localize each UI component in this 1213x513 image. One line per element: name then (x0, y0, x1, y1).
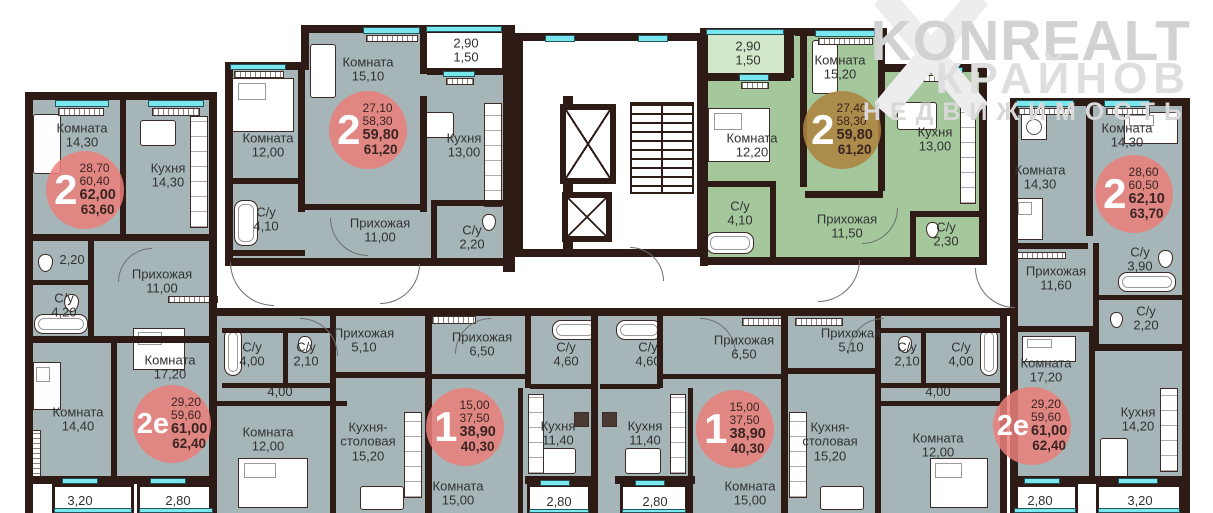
radiator-icon (1018, 108, 1072, 115)
corridor-area (217, 266, 1003, 310)
window-icon (148, 100, 204, 107)
room-name: Кухня-столовая (327, 421, 409, 450)
room-name: Комната (53, 406, 104, 420)
window-icon (1098, 508, 1180, 513)
room-label: Комната14,40 (53, 406, 104, 435)
wall (431, 200, 510, 206)
apartment-badge[interactable]: 2 28,6060,50 62,1063,70 (1095, 155, 1173, 233)
room-label: Прихожая6,50 (452, 331, 512, 360)
apartment-badge[interactable]: 1 15,0037,50 38,9040,30 (426, 388, 504, 466)
wall (215, 401, 347, 406)
window-icon (150, 478, 186, 484)
room-label: Кухня13,00 (918, 126, 953, 155)
room-label: Комната14,30 (1102, 122, 1153, 151)
room-area: 15,10 (343, 70, 394, 84)
apartment-areas: 27,1058,30 59,8061,20 (363, 102, 399, 157)
room-label: Комната14,30 (57, 122, 108, 151)
bathtub-icon (616, 320, 662, 340)
room-area: 13,00 (918, 140, 953, 154)
apartment-rooms-count: 2е (137, 410, 169, 439)
window-icon (1016, 100, 1074, 107)
wall (700, 28, 708, 266)
room-area: 17,20 (1021, 371, 1072, 385)
wall (225, 62, 233, 266)
room-area: 11,00 (132, 282, 192, 296)
window-icon (55, 100, 109, 107)
room-area: 2,80 (642, 495, 667, 509)
window-icon (638, 35, 668, 42)
wall (518, 388, 523, 513)
room-name: Кухня-столовая (789, 421, 871, 450)
radiator-icon (32, 430, 41, 480)
room-area: 2,80 (546, 495, 571, 509)
room-name: Прихожая (350, 217, 410, 231)
room-area: 14,30 (1102, 136, 1153, 150)
apartment-rooms-count: 1 (434, 406, 457, 448)
wall (209, 92, 217, 513)
room-name: С/у (459, 224, 484, 238)
window-icon (905, 67, 963, 74)
room-name: Комната (145, 354, 196, 368)
room-name: Кухня (918, 126, 953, 140)
room-name: Прихожая (817, 213, 877, 227)
wall (879, 328, 1003, 333)
room-label: С/у2,20 (459, 224, 484, 253)
radiator-icon (1016, 252, 1066, 259)
room-area: 2,20 (59, 253, 84, 267)
wall (1089, 332, 1095, 478)
wall (600, 384, 660, 389)
wall (1182, 98, 1190, 513)
room-label: 3,20 (67, 494, 92, 508)
room-label: Комната12,00 (913, 432, 964, 461)
bed-icon (238, 458, 308, 508)
room-area: 15,20 (327, 449, 409, 463)
apartment-badge[interactable]: 1 15,0037,50 38,9040,30 (696, 390, 774, 468)
window-icon (635, 480, 665, 486)
wall (111, 343, 117, 480)
apartment-badge-highlighted[interactable]: 2 27,4058,30 59,8061,20 (803, 91, 881, 169)
room-label: Прихожая5,10 (334, 327, 394, 356)
room-label: Кухня11,40 (541, 420, 576, 449)
room-area: 2,10 (894, 355, 919, 369)
watermark-brand: KONREALT (863, 14, 1191, 68)
room-area: 14,30 (151, 176, 186, 190)
window-icon (62, 478, 98, 484)
room-label: С/у2,30 (933, 221, 958, 250)
bed-icon (232, 78, 294, 132)
window-icon (363, 27, 420, 34)
wall (1093, 344, 1183, 351)
room-label: С/у2,10 (894, 341, 919, 370)
kitchen-counter-icon (484, 103, 502, 207)
room-name: С/у (727, 200, 752, 214)
wall (120, 100, 126, 240)
kitchen-counter-icon (670, 394, 686, 474)
wall (1014, 243, 1088, 249)
wall (800, 35, 807, 187)
room-label: Комната15,10 (343, 56, 394, 85)
apartment-rooms-count: 2 (811, 109, 834, 151)
room-area: 6,50 (452, 345, 512, 359)
room-area: 15,00 (433, 494, 484, 508)
wall (805, 191, 883, 198)
room-name: Прихожая (132, 268, 192, 282)
room-label: 2,901,50 (453, 37, 478, 66)
room-label: Кухня14,30 (151, 162, 186, 191)
room-label: Кухня-столовая15,20 (327, 421, 409, 464)
apartment-badge[interactable]: 2е 29,2059,60 61,0062,40 (993, 387, 1071, 465)
room-label: Комната15,00 (725, 480, 776, 509)
room-name: Кухня (1121, 406, 1156, 420)
sofa-icon (310, 44, 336, 98)
wall (298, 68, 305, 212)
wall (688, 388, 693, 513)
wall (530, 384, 591, 389)
radiator-icon (741, 82, 769, 89)
bathtub-icon (1118, 272, 1176, 292)
room-label: Прихожая11,60 (1026, 265, 1086, 294)
room-area: 15,20 (789, 449, 871, 463)
radiator-icon (742, 318, 786, 326)
room-name: С/у (1133, 305, 1158, 319)
room-area: 3,20 (1127, 494, 1152, 508)
radiator-icon (432, 316, 476, 324)
room-label: Прихожая5,10 (821, 327, 881, 356)
room-label: С/у4,10 (727, 200, 752, 229)
wall (31, 280, 91, 285)
wall (1098, 295, 1184, 300)
room-label: Комната12,20 (727, 132, 778, 161)
wall (31, 234, 213, 241)
room-area: 14,30 (1015, 178, 1066, 192)
room-name: Комната (57, 122, 108, 136)
window-icon (622, 509, 686, 513)
room-label: Прихожая6,50 (714, 334, 774, 363)
room-label: С/у4,20 (51, 292, 76, 321)
room-area: 14,40 (53, 420, 104, 434)
wall (700, 181, 776, 187)
room-name: С/у (933, 221, 958, 235)
room-name: С/у (635, 341, 660, 355)
wall (979, 68, 987, 265)
room-name: Прихожая (1026, 265, 1086, 279)
room-name: Комната (1015, 164, 1066, 178)
floor-plan: 2 28,7060,40 62,0063,60 2 27,1058,30 59,… (0, 0, 1213, 513)
wall (88, 241, 94, 339)
wall (25, 92, 217, 100)
apartment-areas: 29,2059,60 61,0062,40 (1031, 398, 1067, 453)
room-label: 2,80 (546, 495, 571, 509)
room-area: 14,30 (57, 136, 108, 150)
room-area: 2,10 (293, 355, 318, 369)
room-name: Комната (725, 480, 776, 494)
dining-table-icon (140, 120, 176, 146)
room-name: Комната (343, 56, 394, 70)
wall (787, 368, 877, 374)
room-label: С/у4,60 (635, 341, 660, 370)
elevator-shaft-icon (560, 104, 616, 184)
room-area: 12,00 (243, 146, 294, 160)
room-area: 12,00 (243, 440, 294, 454)
wall (910, 211, 916, 259)
room-label: С/у2,20 (1133, 305, 1158, 334)
bathtub-icon (706, 232, 754, 254)
apartment-areas: 28,6060,50 62,1063,70 (1129, 166, 1165, 221)
apartment-areas: 27,4058,30 59,8061,20 (837, 102, 873, 157)
dining-table-icon (625, 448, 661, 474)
room-label: 4,00 (267, 385, 292, 399)
room-name: С/у (239, 341, 264, 355)
room-label: Комната15,00 (433, 480, 484, 509)
room-label: Кухня-столовая15,20 (789, 421, 871, 464)
wall (515, 249, 705, 257)
wall (1086, 106, 1093, 236)
washing-machine-icon (1021, 114, 1047, 140)
radiator-icon (1106, 108, 1150, 115)
room-label: С/у3,90 (1127, 246, 1152, 275)
room-label: Кухня11,40 (628, 420, 663, 449)
bed-icon (930, 458, 988, 508)
room-area: 11,40 (541, 434, 576, 448)
room-label: Прихожая11,00 (350, 217, 410, 246)
room-name: С/у (553, 341, 578, 355)
room-name: Прихожая (821, 327, 881, 341)
bed-icon (1015, 198, 1043, 240)
room-area: 15,00 (725, 494, 776, 508)
room-name: Кухня (628, 420, 663, 434)
radiator-icon (446, 78, 474, 85)
apartment-areas: 15,0037,50 38,9040,30 (730, 401, 766, 456)
wall (525, 308, 531, 388)
room-area: 4,60 (635, 355, 660, 369)
radiator-icon (908, 75, 962, 82)
room-name: Прихожая (714, 334, 774, 348)
wall (515, 33, 705, 41)
room-name: Комната (243, 132, 294, 146)
room-area: 12,00 (913, 446, 964, 460)
dining-table-icon (1100, 438, 1128, 478)
room-area: 4,00 (267, 385, 292, 399)
room-name: Комната (1021, 357, 1072, 371)
room-name: С/у (894, 341, 919, 355)
room-label: Комната17,20 (1021, 357, 1072, 386)
room-area: 3,20 (67, 494, 92, 508)
window-icon (706, 29, 784, 35)
room-area: 1,50 (453, 51, 478, 65)
window-icon (1104, 100, 1150, 107)
room-area: 11,50 (817, 227, 877, 241)
apartment-areas: 29,2059,60 61,0062,40 (171, 396, 207, 451)
dining-table-icon (820, 486, 864, 510)
room-area: 14,20 (1121, 420, 1156, 434)
bed-icon (33, 362, 61, 410)
wall (770, 181, 776, 259)
wall (420, 30, 427, 74)
room-area: 3,90 (1127, 260, 1152, 274)
radiator-icon (234, 71, 284, 78)
room-name: Кухня (447, 132, 482, 146)
room-area: 4,10 (727, 214, 752, 228)
room-label: Прихожая11,50 (817, 213, 877, 242)
bathtub-icon (980, 328, 998, 376)
room-label: 4,00 (925, 385, 950, 399)
wall (420, 96, 427, 212)
room-label: 2,80 (642, 495, 667, 509)
room-area: 11,60 (1026, 279, 1086, 293)
wall (283, 330, 288, 387)
room-label: Комната12,00 (243, 132, 294, 161)
room-name: Комната (727, 132, 778, 146)
room-area: 4,00 (948, 355, 973, 369)
kitchen-counter-icon (960, 86, 976, 204)
stove-icon (574, 412, 589, 427)
room-area: 2,20 (1133, 319, 1158, 333)
wall (515, 33, 523, 257)
room-name: С/у (253, 206, 278, 220)
window-icon (443, 71, 475, 77)
wall (229, 250, 305, 256)
room-area: 2,30 (933, 235, 958, 249)
room-area: 4,00 (925, 385, 950, 399)
room-label: 2,20 (59, 253, 84, 267)
window-icon (529, 509, 589, 513)
room-name: С/у (1127, 246, 1152, 260)
room-area: 5,10 (334, 341, 394, 355)
room-label: Комната14,30 (1015, 164, 1066, 193)
room-area: 13,00 (447, 146, 482, 160)
apartment-rooms-count: 2 (1103, 173, 1126, 215)
room-area: 4,60 (553, 355, 578, 369)
wall (25, 92, 33, 513)
room-area: 4,10 (253, 220, 278, 234)
room-label: Комната17,20 (145, 354, 196, 383)
room-label: С/у4,00 (948, 341, 973, 370)
wall (1014, 326, 1094, 332)
room-area: 12,20 (727, 146, 778, 160)
window-icon (1118, 478, 1158, 484)
apartment-areas: 28,7060,40 62,0063,60 (80, 162, 116, 217)
room-name: С/у (51, 292, 76, 306)
room-area: 1,50 (735, 54, 760, 68)
window-icon (815, 30, 875, 37)
apartment-badge[interactable]: 2 27,1058,30 59,8061,20 (329, 91, 407, 169)
room-area: 11,00 (350, 231, 410, 245)
room-name: Комната (243, 426, 294, 440)
elevator-shaft-icon (562, 192, 612, 242)
room-area: 11,40 (628, 434, 663, 448)
wall (31, 476, 217, 484)
radiator-icon (152, 108, 200, 116)
room-name: Кухня (541, 420, 576, 434)
room-label: 3,20 (1127, 494, 1152, 508)
room-label: 2,80 (1027, 494, 1052, 508)
apartment-rooms-count: 1 (704, 408, 727, 450)
room-area: 15,20 (815, 68, 866, 82)
room-label: Прихожая11,00 (132, 268, 192, 297)
radiator-icon (58, 108, 104, 116)
room-name: С/у (948, 341, 973, 355)
wall (910, 211, 985, 217)
room-label: С/у4,10 (253, 206, 278, 235)
wall (878, 33, 885, 191)
wall (431, 206, 437, 266)
apartment-badge[interactable]: 2е 29,2059,60 61,0062,40 (133, 385, 211, 463)
wall (921, 330, 926, 387)
wall (432, 374, 526, 379)
window-icon (1024, 478, 1060, 484)
radiator-icon (366, 35, 418, 42)
room-area: 17,20 (145, 368, 196, 382)
apartment-badge[interactable]: 2 28,7060,40 62,0063,60 (46, 151, 124, 229)
window-icon (739, 74, 769, 81)
room-name: 2,90 (453, 37, 478, 51)
room-label: С/у4,00 (239, 341, 264, 370)
room-name: Комната (913, 432, 964, 446)
room-name: Комната (433, 480, 484, 494)
apartment-areas: 15,0037,50 38,9040,30 (460, 399, 496, 454)
apartment-rooms-count: 2е (997, 412, 1029, 441)
room-area: 5,10 (821, 341, 881, 355)
room-name: Комната (1102, 122, 1153, 136)
room-name: С/у (293, 341, 318, 355)
dining-table-icon (540, 448, 576, 474)
wall (225, 178, 303, 184)
wall (305, 204, 427, 210)
radiator-icon (818, 38, 873, 45)
apartment-rooms-count: 2 (54, 169, 77, 211)
room-area: 4,20 (51, 306, 76, 320)
room-area: 2,80 (165, 494, 190, 508)
window-icon (139, 508, 213, 513)
wall (503, 25, 515, 272)
window-icon (54, 508, 132, 513)
room-name: Комната (815, 54, 866, 68)
room-name: Кухня (151, 162, 186, 176)
window-icon (540, 480, 570, 486)
staircase-icon (630, 102, 694, 194)
wall (336, 372, 426, 378)
room-label: С/у2,10 (293, 341, 318, 370)
wall (787, 28, 794, 78)
wall (31, 336, 215, 343)
room-name: Прихожая (452, 331, 512, 345)
window-icon (1014, 508, 1076, 513)
wall (660, 374, 781, 379)
dining-table-icon (360, 486, 404, 510)
room-label: Комната12,00 (243, 426, 294, 455)
room-label: 2,901,50 (735, 40, 760, 69)
room-label: 2,80 (165, 494, 190, 508)
room-label: С/у4,60 (553, 341, 578, 370)
apartment-rooms-count: 2 (337, 109, 360, 151)
window-icon (230, 64, 286, 70)
wall (781, 312, 788, 513)
window-icon (545, 35, 575, 42)
room-area: 4,00 (239, 355, 264, 369)
window-icon (426, 26, 502, 32)
stove-icon (602, 412, 617, 427)
room-label: Кухня14,20 (1121, 406, 1156, 435)
room-label: Кухня13,00 (447, 132, 482, 161)
room-label: Комната15,20 (815, 54, 866, 83)
room-area: 2,80 (1027, 494, 1052, 508)
kitchen-counter-icon (1160, 388, 1178, 472)
room-area: 2,20 (459, 238, 484, 252)
room-area: 6,50 (714, 348, 774, 362)
room-name: 2,90 (735, 40, 760, 54)
room-name: Прихожая (334, 327, 394, 341)
